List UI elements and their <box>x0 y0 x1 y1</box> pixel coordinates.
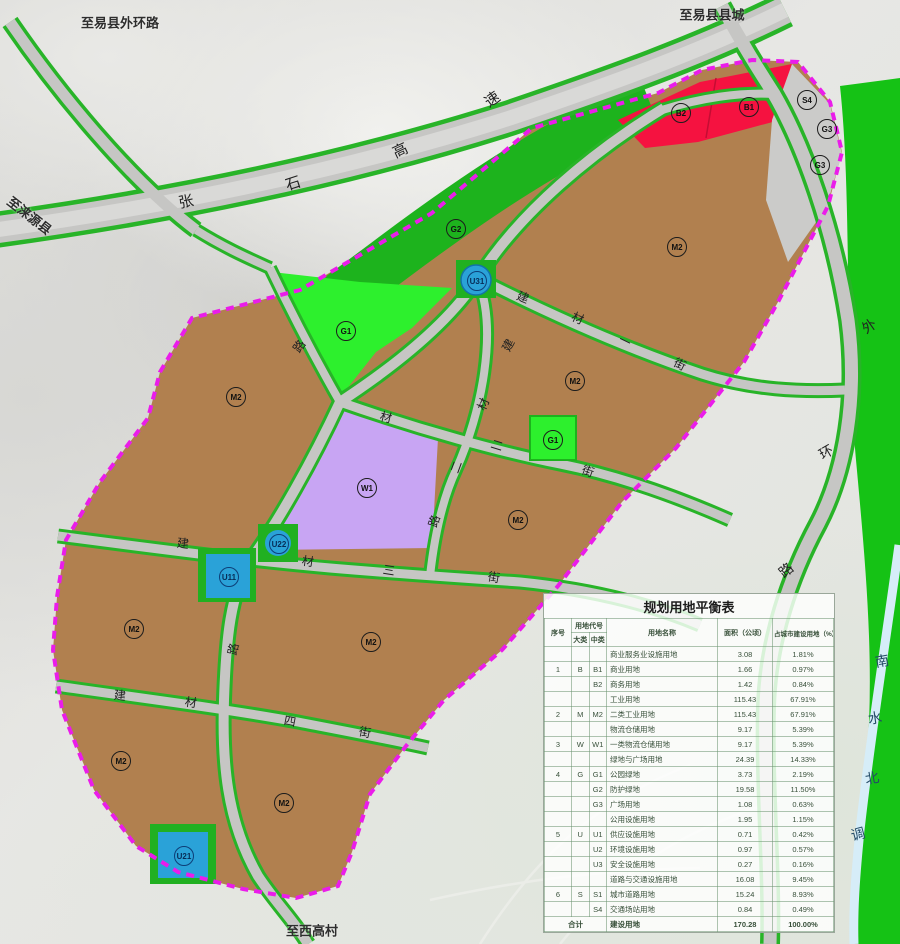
cell-minor: U1 <box>589 827 607 842</box>
table-title: 规划用地平衡表 <box>544 594 834 618</box>
cell-minor: U3 <box>589 857 607 872</box>
land-use-balance-table: 规划用地平衡表 序号 用地代号 用地名称 面积（公顷） 占城市建设用地（%） 大… <box>543 593 835 933</box>
cell-area: 115.43 <box>718 707 773 722</box>
zone-label-m2: M2 <box>508 510 528 530</box>
cell-seq: 5 <box>545 827 572 842</box>
cell-pct: 0.84% <box>773 677 834 692</box>
cell-area: 115.43 <box>718 692 773 707</box>
zone-label-u21: U21 <box>174 846 194 866</box>
destination-label: 至易县县城 <box>679 5 744 24</box>
zone-label-u11: U11 <box>219 567 239 587</box>
cell-major <box>572 842 590 857</box>
cell-name: 物流仓储用地 <box>607 722 718 737</box>
cell-major <box>572 797 590 812</box>
cell-area: 0.71 <box>718 827 773 842</box>
cell-pct: 5.39% <box>773 737 834 752</box>
cell-minor: M2 <box>589 707 607 722</box>
total-label: 合计 <box>545 917 607 932</box>
total-area: 170.28 <box>718 917 773 932</box>
cell-name: 城市道路用地 <box>607 887 718 902</box>
cell-minor: S1 <box>589 887 607 902</box>
cell-major: W <box>572 737 590 752</box>
table-row: U2环境设施用地0.970.57% <box>545 842 834 857</box>
zone-label-b1: B1 <box>739 97 759 117</box>
cell-seq <box>545 722 572 737</box>
zone-label-u22: U22 <box>269 534 289 554</box>
table-row: 物流仓储用地9.175.39% <box>545 722 834 737</box>
table-row: 商业服务业设施用地3.081.81% <box>545 647 834 662</box>
road-name-char: 材 <box>184 693 198 712</box>
cell-area: 9.17 <box>718 722 773 737</box>
cell-minor: W1 <box>589 737 607 752</box>
zone-label-u31: U31 <box>467 271 487 291</box>
cell-seq <box>545 692 572 707</box>
cell-pct: 0.49% <box>773 902 834 917</box>
cell-name: 公园绿地 <box>607 767 718 782</box>
cell-pct: 9.45% <box>773 872 834 887</box>
header-major: 大类 <box>572 633 590 647</box>
header-pct: 占城市建设用地（%） <box>773 619 834 647</box>
zone-label-m2: M2 <box>361 632 381 652</box>
header-name: 用地名称 <box>607 619 718 647</box>
cell-area: 24.39 <box>718 752 773 767</box>
road-name-char: 建 <box>113 686 127 704</box>
total-pct: 100.00% <box>773 917 834 932</box>
cell-minor: G2 <box>589 782 607 797</box>
table-row: 6SS1城市道路用地15.248.93% <box>545 887 834 902</box>
cell-pct: 0.63% <box>773 797 834 812</box>
zone-label-m2: M2 <box>111 751 131 771</box>
cell-seq: 3 <box>545 737 572 752</box>
cell-pct: 1.81% <box>773 647 834 662</box>
table-row: 5UU1供应设施用地0.710.42% <box>545 827 834 842</box>
table-row: G2防护绿地19.5811.50% <box>545 782 834 797</box>
total-name: 建设用地 <box>607 917 718 932</box>
cell-minor <box>589 752 607 767</box>
cell-area: 1.42 <box>718 677 773 692</box>
cell-seq <box>545 752 572 767</box>
zone-label-g2: G2 <box>446 219 466 239</box>
destination-label: 至西高村 <box>286 921 338 940</box>
road-name-char: 建 <box>176 534 190 552</box>
cell-area: 1.95 <box>718 812 773 827</box>
cell-area: 9.17 <box>718 737 773 752</box>
cell-minor <box>589 722 607 737</box>
table-row: 3WW1一类物流仓储用地9.175.39% <box>545 737 834 752</box>
zone-label-m2: M2 <box>667 237 687 257</box>
cell-pct: 67.91% <box>773 692 834 707</box>
zone-label-g3: G3 <box>817 119 837 139</box>
cell-major <box>572 692 590 707</box>
cell-minor <box>589 812 607 827</box>
cell-name: 道路与交通设施用地 <box>607 872 718 887</box>
table-row: 2MM2二类工业用地115.4367.91% <box>545 707 834 722</box>
cell-pct: 0.57% <box>773 842 834 857</box>
table-row: 1BB1商业用地1.660.97% <box>545 662 834 677</box>
cell-seq: 2 <box>545 707 572 722</box>
table-total-row: 合计 建设用地 170.28 100.00% <box>545 917 834 932</box>
cell-area: 1.08 <box>718 797 773 812</box>
header-minor: 中类 <box>589 633 607 647</box>
cell-seq <box>545 782 572 797</box>
header-seq: 序号 <box>545 619 572 647</box>
cell-pct: 5.39% <box>773 722 834 737</box>
cell-area: 15.24 <box>718 887 773 902</box>
zone-label-w1: W1 <box>357 478 377 498</box>
cell-major <box>572 647 590 662</box>
cell-minor <box>589 692 607 707</box>
header-area: 面积（公顷） <box>718 619 773 647</box>
table-header: 序号 用地代号 用地名称 面积（公顷） 占城市建设用地（%） 大类 中类 <box>545 619 834 647</box>
cell-name: 商务用地 <box>607 677 718 692</box>
cell-pct: 0.16% <box>773 857 834 872</box>
cell-seq: 1 <box>545 662 572 677</box>
cell-minor: G3 <box>589 797 607 812</box>
planning-map: 张石高速建材一街建材二路材二街建材三街建材四街路路外环路南水北调 B2B1S4G… <box>0 0 900 944</box>
cell-pct: 11.50% <box>773 782 834 797</box>
cell-pct: 0.42% <box>773 827 834 842</box>
table-row: 工业用地115.4367.91% <box>545 692 834 707</box>
zone-label-b2: B2 <box>671 103 691 123</box>
cell-name: 环境设施用地 <box>607 842 718 857</box>
cell-pct: 0.97% <box>773 662 834 677</box>
cell-minor: B2 <box>589 677 607 692</box>
table-row: 绿地与广场用地24.3914.33% <box>545 752 834 767</box>
cell-name: 绿地与广场用地 <box>607 752 718 767</box>
cell-major <box>572 782 590 797</box>
cell-name: 防护绿地 <box>607 782 718 797</box>
cell-major: U <box>572 827 590 842</box>
cell-name: 商业用地 <box>607 662 718 677</box>
zone-label-g1: G1 <box>336 321 356 341</box>
cell-pct: 67.91% <box>773 707 834 722</box>
cell-major <box>572 812 590 827</box>
table-row: 公用设施用地1.951.15% <box>545 812 834 827</box>
cell-major: M <box>572 707 590 722</box>
cell-major <box>572 677 590 692</box>
table-body: 商业服务业设施用地3.081.81%1BB1商业用地1.660.97%B2商务用… <box>545 647 834 917</box>
cell-seq <box>545 812 572 827</box>
cell-major <box>572 722 590 737</box>
balance-table: 序号 用地代号 用地名称 面积（公顷） 占城市建设用地（%） 大类 中类 商业服… <box>544 618 834 932</box>
cell-major: B <box>572 662 590 677</box>
cell-seq <box>545 842 572 857</box>
cell-name: 二类工业用地 <box>607 707 718 722</box>
cell-name: 一类物流仓储用地 <box>607 737 718 752</box>
road-name-char: 材 <box>301 552 315 571</box>
zone-label-s4: S4 <box>797 90 817 110</box>
cell-minor: U2 <box>589 842 607 857</box>
cell-major: G <box>572 767 590 782</box>
cell-seq <box>545 677 572 692</box>
table-row: B2商务用地1.420.84% <box>545 677 834 692</box>
cell-area: 0.27 <box>718 857 773 872</box>
cell-seq <box>545 872 572 887</box>
cell-pct: 2.19% <box>773 767 834 782</box>
canal-green-band <box>840 78 900 944</box>
zone-label-g3: G3 <box>810 155 830 175</box>
table-row: S4交通场站用地0.840.49% <box>545 902 834 917</box>
cell-major <box>572 902 590 917</box>
zone-label-m2: M2 <box>565 371 585 391</box>
table-row: 道路与交通设施用地16.089.45% <box>545 872 834 887</box>
cell-minor <box>589 647 607 662</box>
cell-seq <box>545 902 572 917</box>
cell-seq <box>545 857 572 872</box>
cell-seq: 4 <box>545 767 572 782</box>
cell-pct: 14.33% <box>773 752 834 767</box>
cell-minor: S4 <box>589 902 607 917</box>
cell-seq: 6 <box>545 887 572 902</box>
cell-seq <box>545 647 572 662</box>
cell-name: 工业用地 <box>607 692 718 707</box>
destination-label: 至易县外环路 <box>81 13 159 32</box>
cell-pct: 1.15% <box>773 812 834 827</box>
zone-label-g1: G1 <box>543 430 563 450</box>
cell-area: 19.58 <box>718 782 773 797</box>
cell-name: 安全设施用地 <box>607 857 718 872</box>
cell-name: 公用设施用地 <box>607 812 718 827</box>
table-row: 4GG1公园绿地3.732.19% <box>545 767 834 782</box>
cell-area: 1.66 <box>718 662 773 677</box>
cell-major <box>572 752 590 767</box>
cell-pct: 8.93% <box>773 887 834 902</box>
cell-minor: B1 <box>589 662 607 677</box>
table-row: G3广场用地1.080.63% <box>545 797 834 812</box>
cell-minor: G1 <box>589 767 607 782</box>
cell-area: 3.08 <box>718 647 773 662</box>
cell-major: S <box>572 887 590 902</box>
zone-label-m2: M2 <box>124 619 144 639</box>
zone-label-m2: M2 <box>274 793 294 813</box>
cell-area: 3.73 <box>718 767 773 782</box>
cell-name: 交通场站用地 <box>607 902 718 917</box>
cell-minor <box>589 872 607 887</box>
cell-seq <box>545 797 572 812</box>
cell-area: 0.97 <box>718 842 773 857</box>
header-code: 用地代号 <box>572 619 607 633</box>
cell-major <box>572 872 590 887</box>
zone-label-m2: M2 <box>226 387 246 407</box>
cell-major <box>572 857 590 872</box>
table-row: U3安全设施用地0.270.16% <box>545 857 834 872</box>
cell-name: 供应设施用地 <box>607 827 718 842</box>
road-name-char: 水 <box>867 707 884 729</box>
cell-area: 0.84 <box>718 902 773 917</box>
cell-area: 16.08 <box>718 872 773 887</box>
cell-name: 广场用地 <box>607 797 718 812</box>
cell-name: 商业服务业设施用地 <box>607 647 718 662</box>
